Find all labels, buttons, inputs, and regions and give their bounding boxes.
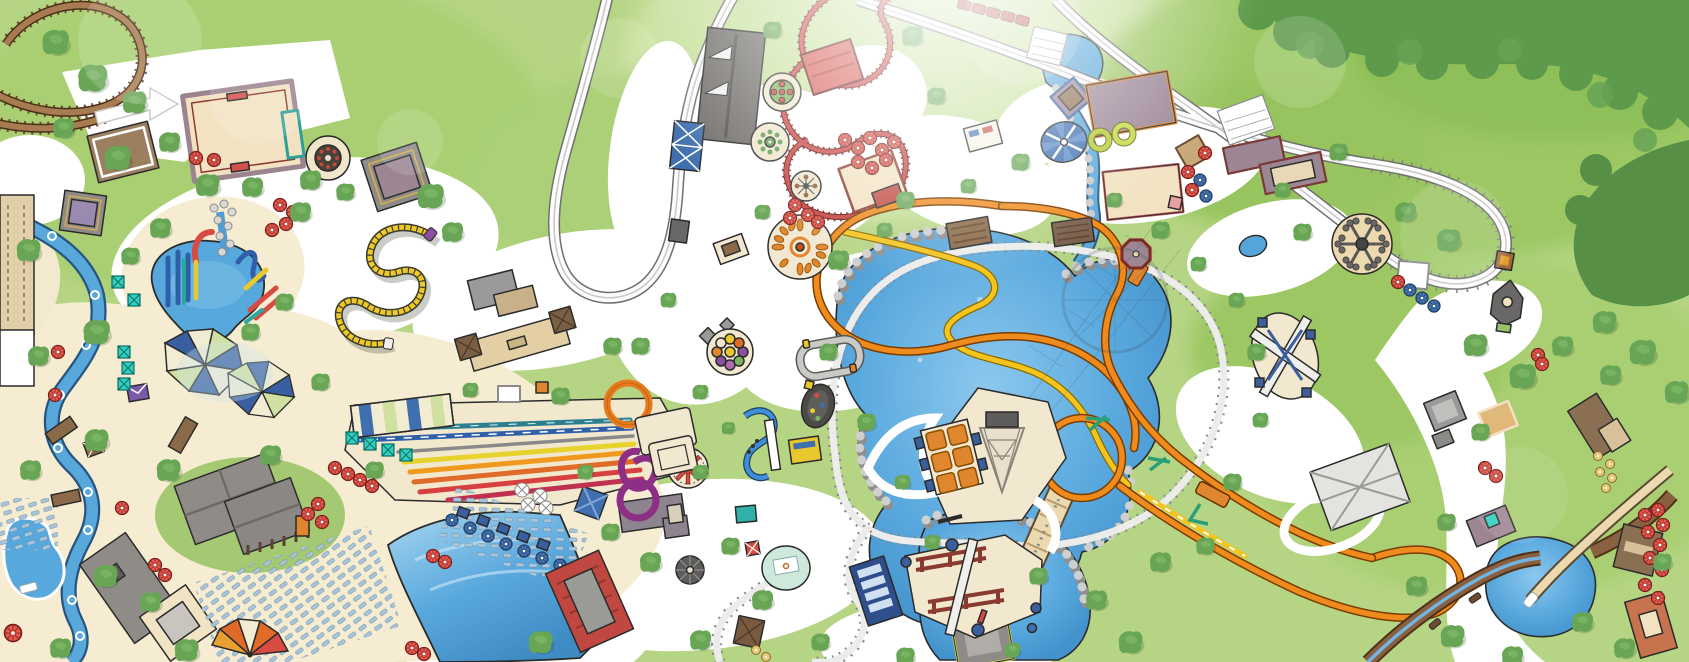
mini-court <box>762 546 810 590</box>
swing-carousel-dark <box>676 556 704 584</box>
map-artwork: Stylized overhead map of a theme park an… <box>0 0 1689 662</box>
small-spinner <box>791 171 821 201</box>
purple-pavilion <box>59 190 106 235</box>
big-cream-building <box>183 81 306 182</box>
park-map[interactable]: Stylized overhead map of a theme park an… <box>0 0 1689 662</box>
grey-station <box>696 27 765 144</box>
balloon-ride <box>707 329 753 375</box>
spider-ride <box>1332 214 1392 274</box>
flower-ride <box>751 123 789 161</box>
teacup-ride <box>763 73 801 111</box>
cream-building <box>1103 164 1184 220</box>
